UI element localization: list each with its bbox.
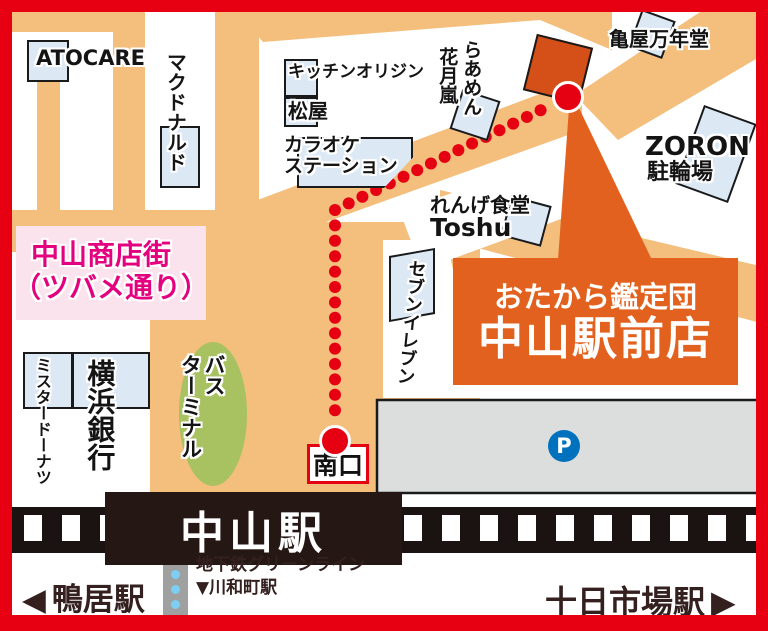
road-narrow	[37, 80, 60, 220]
bus-terminal-line2: ターミナル	[178, 354, 202, 469]
route-dot	[521, 111, 533, 123]
yokohama-bank-label: 横浜銀行	[84, 359, 115, 484]
route-dot	[329, 327, 341, 339]
shotengai-label-line2: （ツバメ通り）	[13, 272, 209, 303]
subway-info: 地下鉄グリーンライン ▼川和町駅	[196, 554, 365, 600]
route-end-marker	[319, 425, 351, 457]
route-dot	[535, 104, 547, 116]
callout-store-group: おたから鑑定団	[494, 283, 697, 312]
route-start-marker	[552, 81, 584, 113]
route-dot	[411, 164, 423, 176]
route-dot	[329, 266, 341, 278]
route-dot	[507, 118, 519, 130]
karaoke-line2: ステーション	[284, 156, 398, 177]
kitchen-origin-label: キッチンオリジン	[288, 63, 424, 82]
route-dot	[329, 204, 341, 216]
matsuya-label: 松屋	[288, 100, 328, 122]
route-dot	[439, 151, 451, 163]
mcdonalds-label: マクドナルド	[164, 52, 186, 197]
parking-icon: P	[548, 430, 580, 462]
route-dot	[329, 250, 341, 262]
route-dot	[329, 389, 341, 401]
bus-terminal-label: バス ターミナル	[178, 354, 225, 469]
bus-terminal-line1: バス	[202, 354, 226, 469]
kameya-label: 亀屋万年堂	[609, 28, 709, 50]
karaoke-line1: カラオケ	[284, 135, 398, 156]
road-vertical-b	[215, 12, 259, 222]
route-dot	[329, 219, 341, 231]
ramen-label-col2: 花月嵐	[436, 47, 457, 117]
route-dot	[466, 138, 478, 150]
route-dot	[329, 312, 341, 324]
mister-donut-label: ミスタードーナツ	[33, 357, 51, 507]
route-dot	[329, 358, 341, 370]
frame-bottom	[0, 615, 768, 631]
road-top-left	[12, 12, 118, 32]
shotengai-label-line1: 中山商店街	[31, 239, 171, 270]
route-dot	[329, 281, 341, 293]
callout-store-name: 中山駅前店	[478, 316, 713, 361]
ramen-label-col1: らあめん	[460, 40, 481, 125]
route-dot	[329, 404, 341, 416]
zoron-bicycle-label: 駐輪場	[647, 161, 713, 186]
toshu-label: Toshu	[430, 214, 511, 242]
left-arrow-icon: ◀	[22, 582, 46, 618]
route-dot	[425, 157, 437, 169]
subway-line-name: 地下鉄グリーンライン	[196, 554, 365, 577]
parking-letter: P	[556, 434, 571, 458]
route-dot	[493, 124, 505, 136]
subway-dot	[171, 570, 180, 579]
route-dot	[343, 197, 355, 209]
nakayama-station-label: 中山駅	[180, 497, 327, 561]
route-dot	[356, 191, 368, 203]
store-callout: おたから鑑定団 中山駅前店	[453, 258, 738, 385]
kamoi-station-label: 鴨居駅	[52, 582, 145, 618]
route-dot	[398, 171, 410, 183]
callout-pointer	[558, 108, 652, 260]
kamoi-direction: ◀鴨居駅	[22, 574, 145, 619]
route-dot	[329, 235, 341, 247]
route-dot	[329, 296, 341, 308]
subway-dot	[171, 600, 180, 609]
zoron-label: ZORON	[645, 133, 750, 162]
frame-right	[756, 0, 768, 631]
frame-top	[0, 0, 768, 12]
route-dot	[329, 373, 341, 385]
atocare-label: ATOCARE	[36, 47, 145, 71]
route-dot	[329, 343, 341, 355]
subway-dot	[171, 585, 180, 594]
kawawacho-station-label: ▼川和町駅	[196, 577, 365, 600]
store-access-map: ATOCARE マクドナルド キッチンオリジン 松屋 カラオケ ステーション ら…	[0, 0, 768, 631]
frame-left	[0, 0, 12, 631]
karaoke-station-label: カラオケ ステーション	[284, 135, 398, 178]
route-dot	[452, 144, 464, 156]
